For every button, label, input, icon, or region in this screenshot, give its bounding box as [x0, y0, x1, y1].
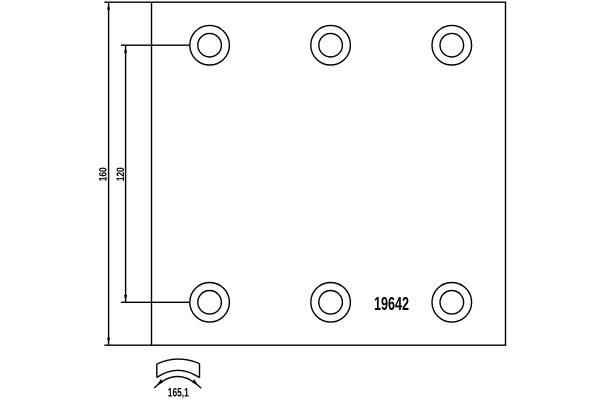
svg-text:165,1: 165,1	[168, 386, 189, 399]
svg-text:19642: 19642	[374, 293, 409, 314]
svg-text:120: 120	[115, 167, 127, 181]
svg-text:160: 160	[98, 167, 110, 181]
